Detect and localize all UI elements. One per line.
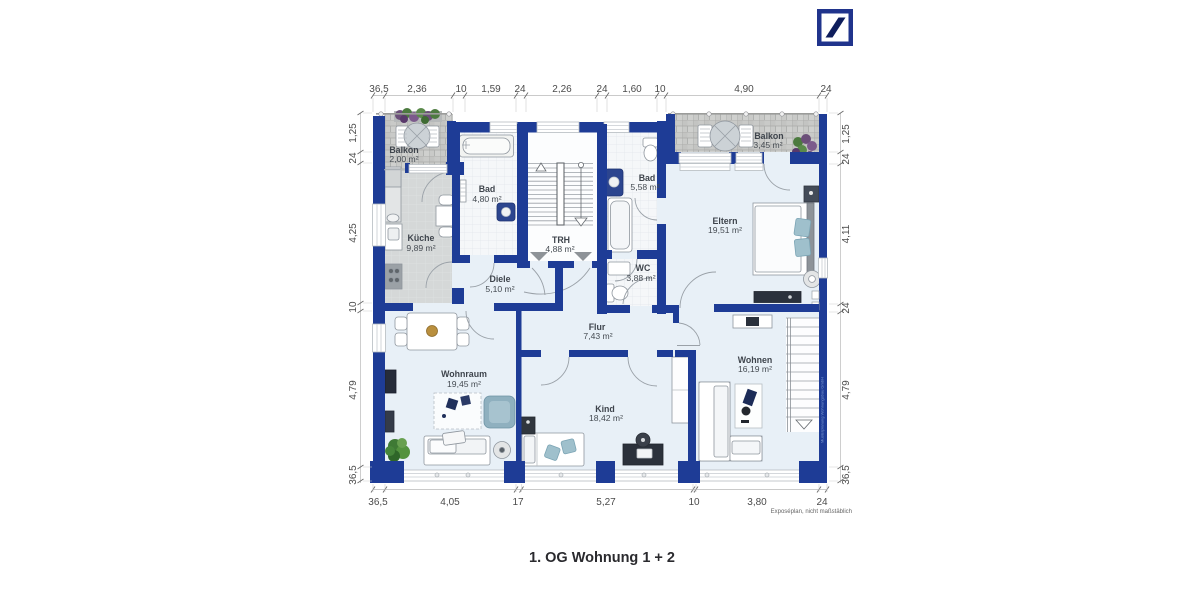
svg-text:24: 24 — [841, 302, 852, 314]
svg-text:7,43 m²: 7,43 m² — [583, 331, 612, 341]
svg-text:10: 10 — [654, 84, 666, 95]
svg-text:4,25: 4,25 — [348, 223, 359, 243]
svg-text:18,42 m²: 18,42 m² — [589, 413, 623, 423]
svg-text:2,26: 2,26 — [552, 84, 572, 95]
svg-text:Musterplanung Wohnungsbau GmbH: Musterplanung Wohnungsbau GmbH — [820, 377, 825, 443]
svg-text:3,80: 3,80 — [747, 497, 767, 508]
svg-text:4,79: 4,79 — [841, 380, 852, 400]
svg-text:4,11: 4,11 — [841, 224, 852, 243]
svg-text:3,88 m²: 3,88 m² — [626, 273, 655, 283]
svg-text:5,27: 5,27 — [596, 497, 616, 508]
svg-text:19,45 m²: 19,45 m² — [447, 379, 481, 389]
svg-text:Bad: Bad — [479, 184, 496, 194]
svg-text:1,25: 1,25 — [841, 124, 852, 144]
svg-text:17: 17 — [512, 497, 524, 508]
svg-text:Küche: Küche — [408, 233, 435, 243]
svg-text:4,79: 4,79 — [348, 380, 359, 400]
svg-text:4,80 m²: 4,80 m² — [472, 194, 501, 204]
svg-text:36,5: 36,5 — [841, 465, 852, 485]
svg-text:3,45 m²: 3,45 m² — [753, 140, 782, 150]
svg-text:24: 24 — [816, 497, 828, 508]
svg-text:1,60: 1,60 — [622, 84, 642, 95]
svg-text:24: 24 — [841, 153, 852, 165]
svg-text:19,51 m²: 19,51 m² — [708, 225, 742, 235]
svg-text:2,36: 2,36 — [407, 84, 427, 95]
svg-text:4,88 m²: 4,88 m² — [545, 244, 574, 254]
svg-text:Wohnraum: Wohnraum — [441, 369, 487, 379]
svg-text:4,90: 4,90 — [734, 84, 754, 95]
svg-text:Diele: Diele — [489, 274, 510, 284]
svg-text:5,58 m²: 5,58 m² — [630, 182, 659, 192]
svg-text:1. OG Wohnung 1 + 2: 1. OG Wohnung 1 + 2 — [529, 550, 675, 566]
svg-text:1,59: 1,59 — [481, 84, 501, 95]
svg-text:10: 10 — [688, 497, 700, 508]
svg-text:24: 24 — [596, 84, 608, 95]
svg-text:9,89 m²: 9,89 m² — [406, 243, 435, 253]
svg-text:10: 10 — [348, 301, 359, 313]
svg-text:16,19 m²: 16,19 m² — [738, 364, 772, 374]
svg-text:10: 10 — [455, 84, 467, 95]
svg-text:Exposéplan, nicht maßstäblich: Exposéplan, nicht maßstäblich — [771, 509, 852, 515]
svg-text:24: 24 — [820, 84, 832, 95]
svg-text:1,25: 1,25 — [348, 123, 359, 143]
svg-text:WC: WC — [636, 263, 651, 273]
svg-text:2,00 m²: 2,00 m² — [389, 154, 418, 164]
svg-text:36,5: 36,5 — [369, 84, 389, 95]
svg-text:5,10 m²: 5,10 m² — [485, 284, 514, 294]
svg-text:24: 24 — [348, 152, 359, 164]
svg-text:36,5: 36,5 — [348, 465, 359, 485]
svg-text:4,05: 4,05 — [440, 497, 460, 508]
svg-text:36,5: 36,5 — [368, 497, 388, 508]
svg-text:24: 24 — [514, 84, 526, 95]
